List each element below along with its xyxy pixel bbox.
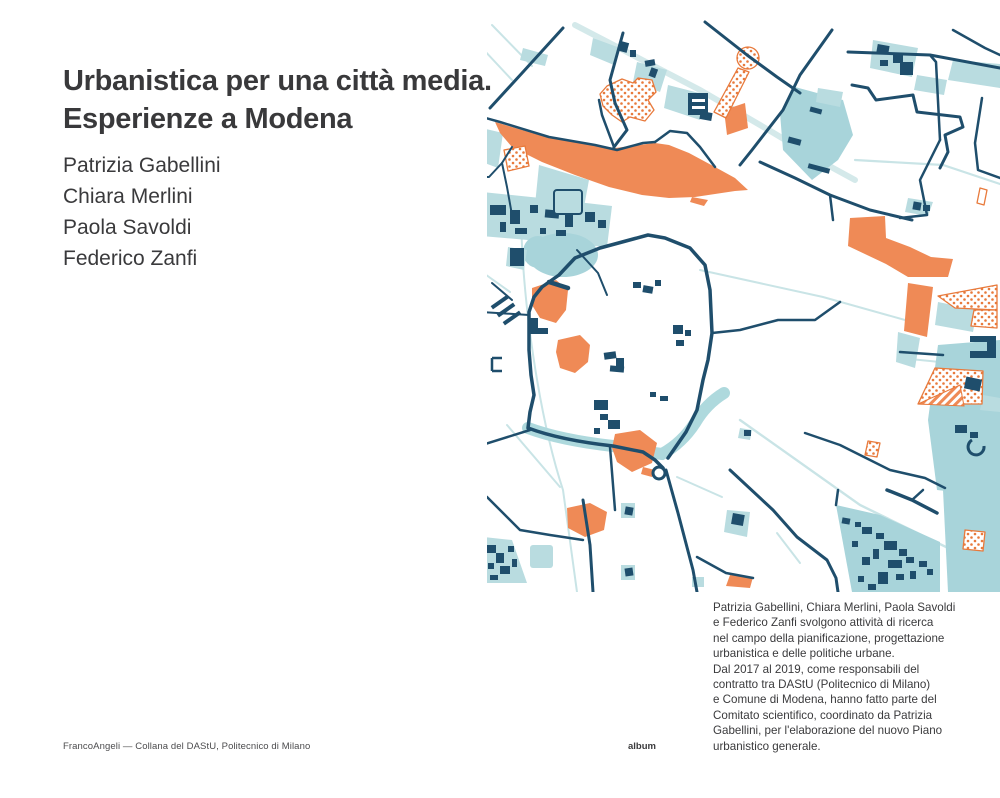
bio-line: contratto tra DAStU (Politecnico di Mila… [713, 677, 955, 692]
book-cover-page: Urbanistica per una città media. Esperie… [0, 0, 1000, 798]
bio-line: Gabellini, per l'elaborazione del nuovo … [713, 723, 955, 738]
bio-line: nel campo della pianificazione, progetta… [713, 631, 955, 646]
authors-bio-text: Patrizia Gabellini, Chiara Merlini, Paol… [713, 600, 955, 754]
title-line-1: Urbanistica per una città media. [63, 62, 492, 100]
modena-map-illustration [487, 0, 1000, 592]
bio-line: urbanistico generale. [713, 739, 955, 754]
author-name: Paola Savoldi [63, 212, 221, 243]
page-title: Urbanistica per una città media. Esperie… [63, 62, 492, 138]
bio-line: e Comune di Modena, hanno fatto parte de… [713, 692, 955, 707]
bio-line: Comitato scientifico, coordinato da Patr… [713, 708, 955, 723]
author-name: Federico Zanfi [63, 243, 221, 274]
authors-list: Patrizia GabelliniChiara MerliniPaola Sa… [63, 150, 221, 274]
publisher-imprint: FrancoAngeli — Collana del DAStU, Polite… [63, 741, 310, 752]
bio-line: Patrizia Gabellini, Chiara Merlini, Paol… [713, 600, 955, 615]
map-roundabout [653, 467, 665, 479]
series-label: album [628, 741, 656, 752]
bio-line: urbanistica e delle politiche urbane. [713, 646, 955, 661]
bio-line: Dal 2017 al 2019, come responsabili del [713, 662, 955, 677]
author-name: Chiara Merlini [63, 181, 221, 212]
bio-line: e Federico Zanfi svolgono attività di ri… [713, 615, 955, 630]
modena-map-svg [487, 0, 1000, 592]
title-line-2: Esperienze a Modena [63, 100, 492, 138]
author-name: Patrizia Gabellini [63, 150, 221, 181]
